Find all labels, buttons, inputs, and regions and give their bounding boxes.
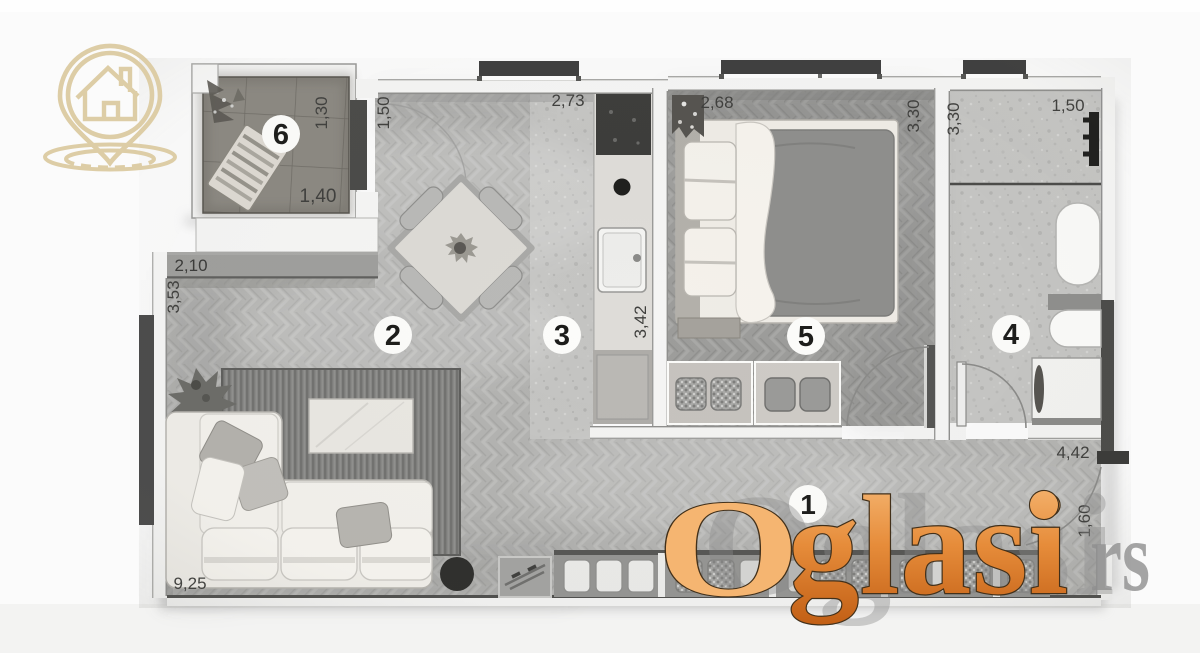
svg-text:2: 2 — [385, 320, 401, 352]
svg-text:3,53: 3,53 — [164, 280, 183, 313]
svg-text:4: 4 — [1003, 319, 1019, 351]
svg-text:1,50: 1,50 — [374, 96, 393, 129]
svg-text:4,42: 4,42 — [1056, 443, 1089, 462]
svg-text:9,25: 9,25 — [173, 574, 206, 593]
svg-text:3,30: 3,30 — [944, 102, 963, 135]
svg-text:3,42: 3,42 — [631, 305, 650, 338]
svg-text:2,10: 2,10 — [174, 256, 207, 275]
svg-text:6: 6 — [273, 119, 289, 151]
svg-text:1,40: 1,40 — [300, 186, 337, 207]
svg-text:1,30: 1,30 — [312, 96, 331, 129]
svg-text:O: O — [657, 472, 800, 626]
svg-text:2,68: 2,68 — [700, 93, 733, 112]
svg-text:3,30: 3,30 — [904, 99, 923, 132]
svg-text:glasi: glasi — [788, 466, 1069, 624]
svg-text:3: 3 — [554, 320, 570, 352]
svg-text:5: 5 — [798, 321, 814, 353]
svg-text:1,50: 1,50 — [1051, 96, 1084, 115]
svg-text:2,73: 2,73 — [551, 91, 584, 110]
svg-text:rs: rs — [1090, 501, 1150, 612]
